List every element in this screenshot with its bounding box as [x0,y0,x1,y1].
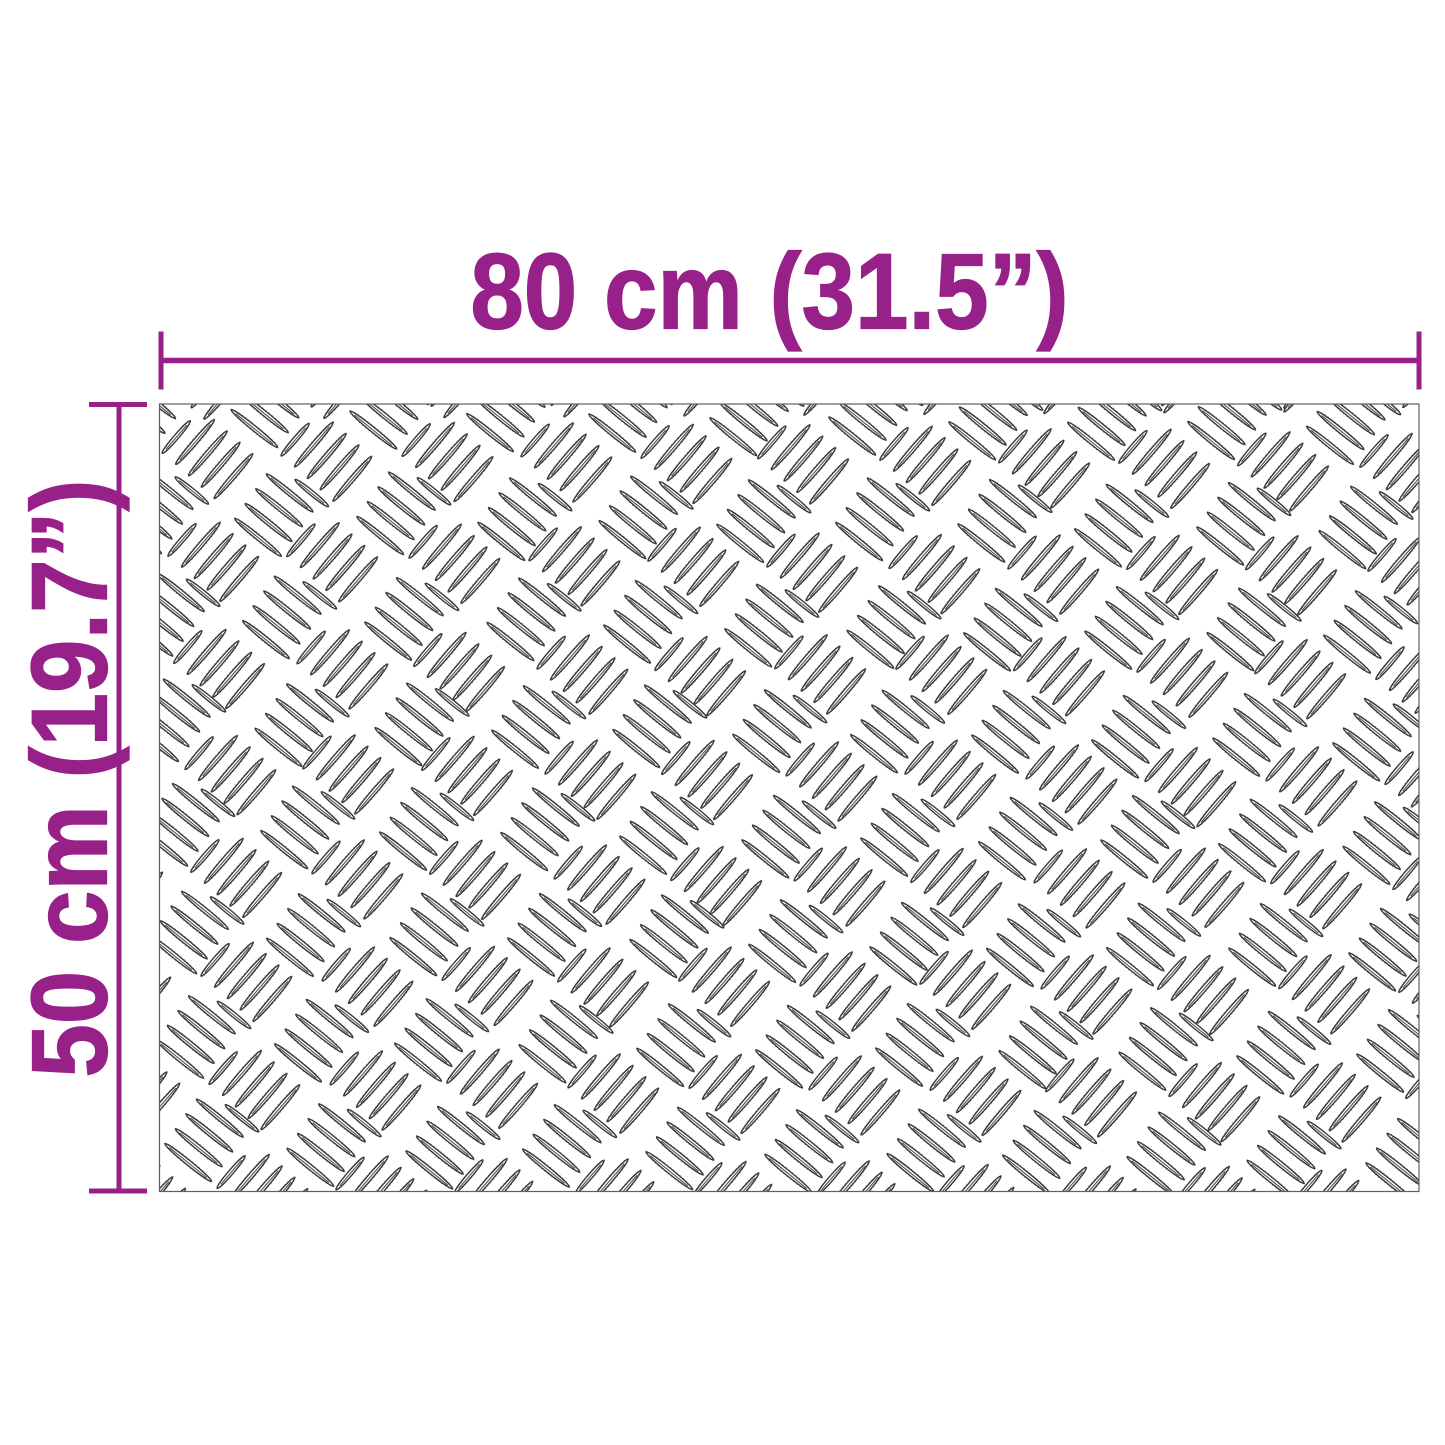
svg-text:80 cm (31.5”): 80 cm (31.5”) [470,230,1068,351]
svg-text:50 cm (19.7”): 50 cm (19.7”) [8,479,129,1077]
